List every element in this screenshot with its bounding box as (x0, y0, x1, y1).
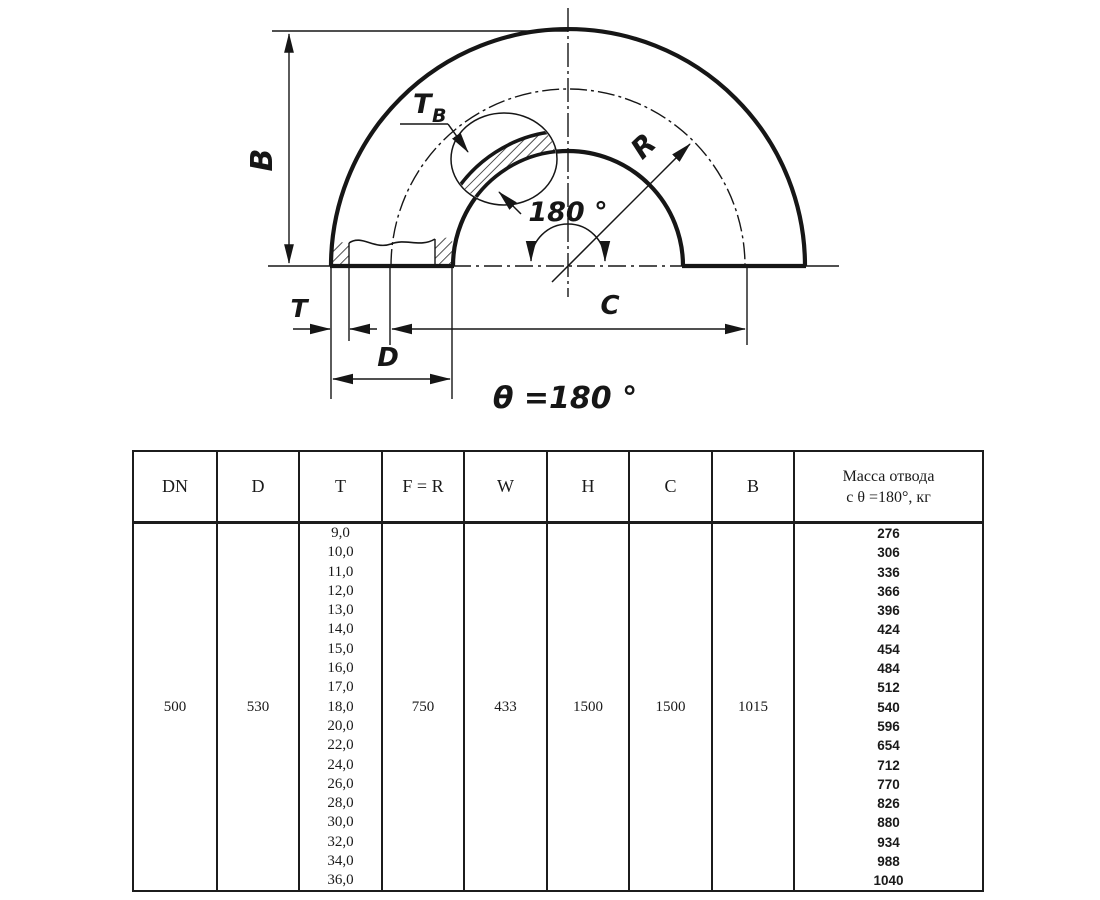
header-dn: DN (134, 452, 218, 524)
value-mass-list: 276 306 336 366 396 424 454 484 512 540 … (795, 524, 982, 891)
header-b: B (713, 452, 795, 524)
header-w: W (465, 452, 548, 524)
c-dimension-label: C (600, 291, 619, 321)
header-d: D (218, 452, 300, 524)
dimension-table: DN D T F = R W H C B Масса отвода с θ =1… (132, 450, 984, 892)
header-t: T (300, 452, 383, 524)
value-d: 530 (218, 524, 300, 891)
header-mass: Масса отвода с θ =180°, кг (795, 452, 982, 524)
value-b: 1015 (713, 524, 795, 891)
value-w: 433 (465, 524, 548, 891)
b-dimension-label: B (245, 149, 280, 172)
wall-hatch-left (331, 241, 349, 264)
value-t-list: 9,0 10,0 11,0 12,0 13,0 14,0 15,0 16,0 1… (300, 524, 383, 891)
t-dimension-label: T (290, 294, 309, 323)
header-h: H (548, 452, 630, 524)
header-f-r: F = R (383, 452, 465, 524)
header-mass-line2: с θ =180°, кг (843, 487, 935, 508)
angle-label: 180 ° (528, 197, 607, 228)
value-c: 1500 (630, 524, 713, 891)
header-c: C (630, 452, 713, 524)
d-dimension-label: D (377, 343, 399, 373)
header-mass-line1: Масса отвода (843, 466, 935, 487)
value-h: 1500 (548, 524, 630, 891)
value-f-r: 750 (383, 524, 465, 891)
elbow-drawing: B T B R 180 ° T C D θ =180 ° (0, 0, 1100, 446)
radius-label: R (624, 127, 662, 166)
value-dn: 500 (134, 524, 218, 891)
wall-hatch-right (435, 237, 453, 264)
tb-label: T (413, 89, 434, 120)
tb-label-subscript: B (432, 105, 446, 127)
theta-caption: θ =180 ° (493, 381, 637, 416)
